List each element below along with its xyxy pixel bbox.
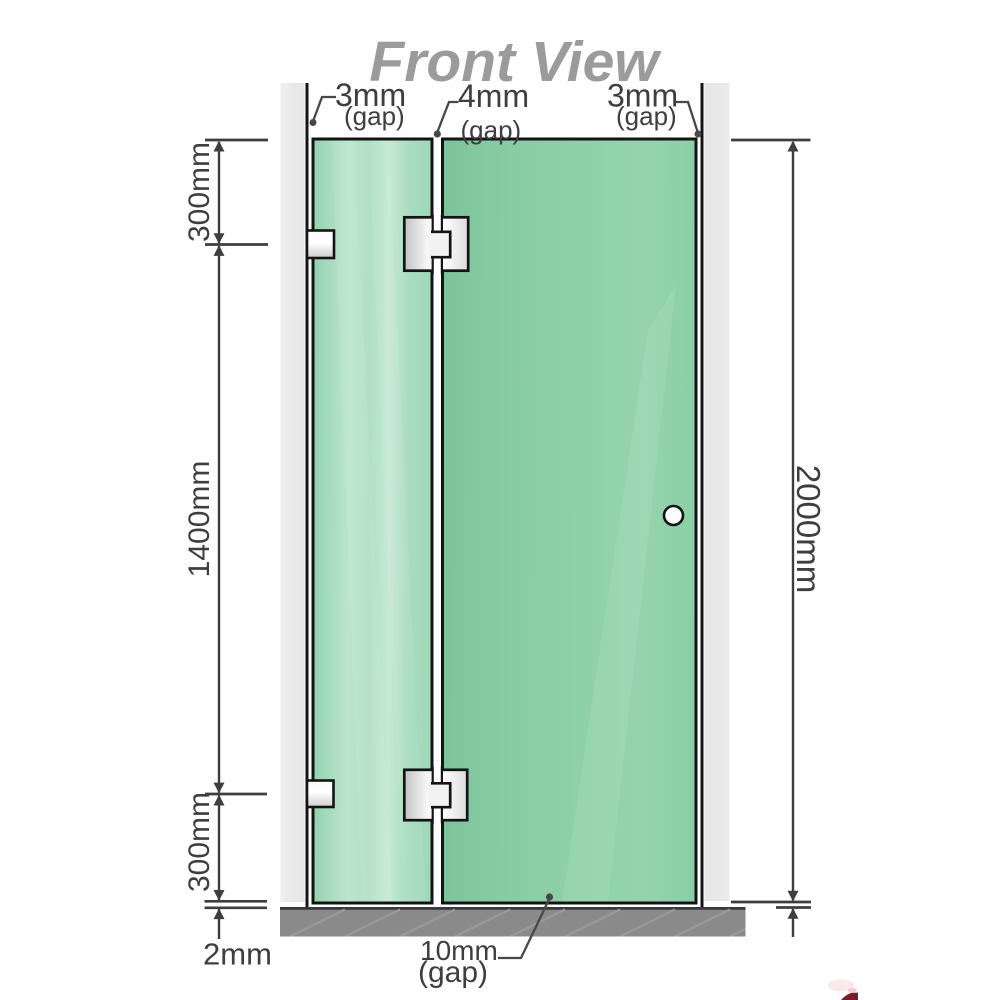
svg-text:(gap): (gap) — [418, 956, 488, 989]
svg-text:(gap): (gap) — [616, 101, 677, 131]
svg-text:(gap): (gap) — [461, 115, 522, 145]
svg-text:300mm: 300mm — [183, 142, 216, 242]
svg-text:300mm: 300mm — [183, 792, 216, 892]
svg-text:1400mm: 1400mm — [183, 461, 216, 578]
svg-text:2000mm: 2000mm — [790, 465, 827, 593]
svg-text:4mm: 4mm — [458, 78, 529, 114]
svg-text:2mm: 2mm — [203, 937, 272, 972]
svg-text:(gap): (gap) — [344, 101, 405, 131]
